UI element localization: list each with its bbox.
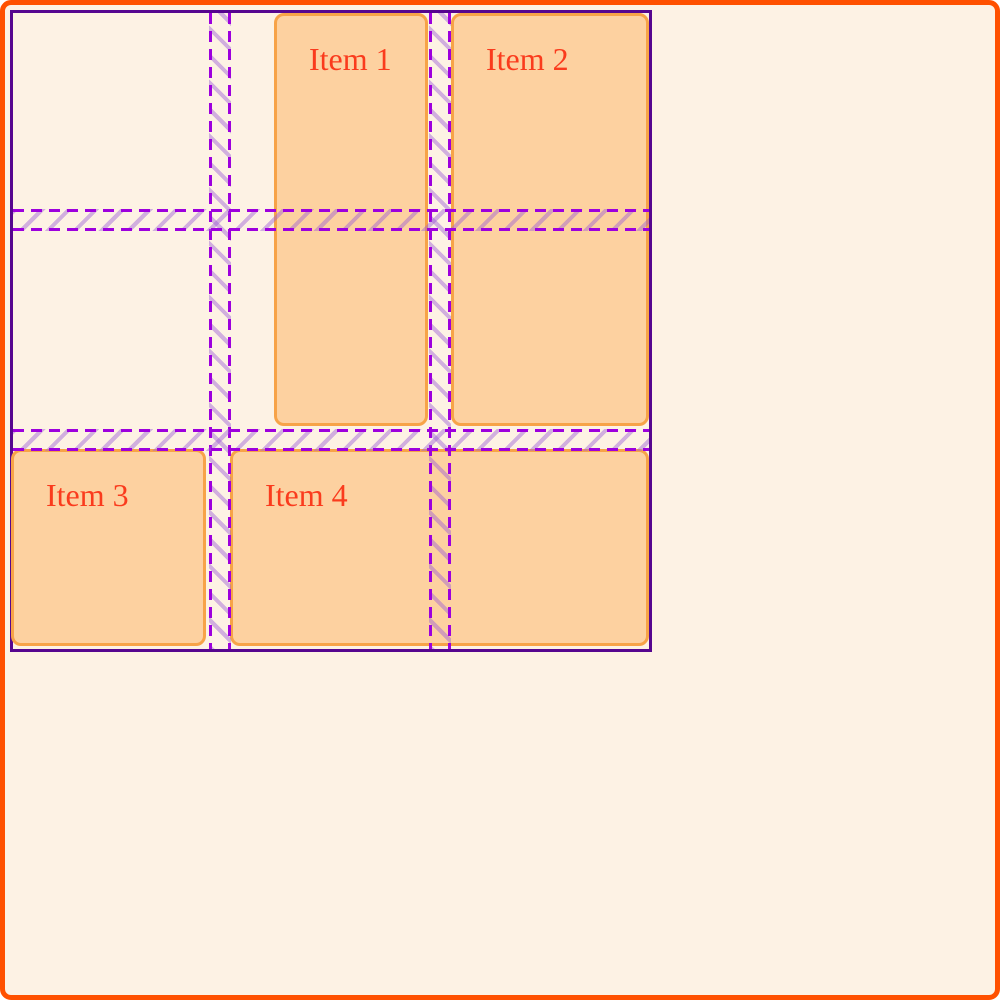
grid-item-2-label: Item 2 (486, 41, 569, 77)
grid-item-2: Item 2 (451, 13, 649, 426)
page-container: Item 1 Item 2 Item 3 Item 4 (0, 0, 1000, 1000)
grid-item-1: Item 1 (274, 13, 428, 426)
grid-item-3-label: Item 3 (46, 477, 129, 513)
grid-item-1-label: Item 1 (309, 41, 392, 77)
grid-item-4: Item 4 (230, 449, 649, 646)
grid-item-3: Item 3 (11, 449, 206, 646)
grid-item-4-label: Item 4 (265, 477, 348, 513)
